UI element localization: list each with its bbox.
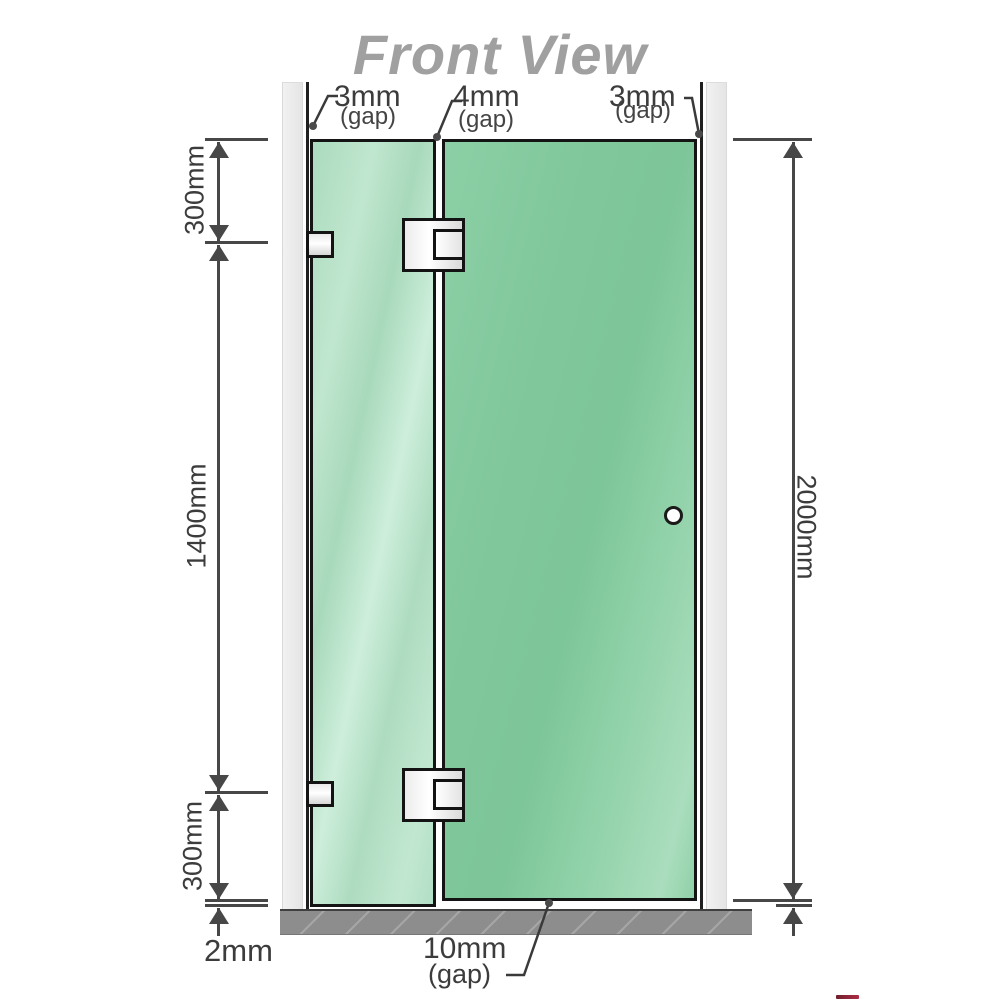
arrow-up-segment-bottom [209,795,229,811]
arrow-up-floor-clearance [209,908,229,924]
page-title: Front View [353,22,647,87]
arrow-down-segment-middle [209,775,229,791]
leader-dot-gap-top-left [309,122,317,130]
diagram-canvas: Front View 300mm 1400mm 300mm 2mm 2000mm [0,0,1000,1000]
glass-hinge-top-tongue [433,229,465,260]
dim-tick-floor-right [776,904,812,907]
arrow-down-segment-bottom [209,883,229,899]
door-panel-glass [442,139,697,901]
glass-hinge-bottom-tongue [433,779,465,810]
dim-label-segment-middle: 1400mm [184,463,211,568]
arrow-up-segment-middle [209,245,229,261]
dim-tick-hinge-top [205,241,268,244]
leader-line-gap-top-right [684,98,699,134]
arrow-up-segment-top [209,142,229,158]
floor-base [280,909,752,935]
gap-label-bottom-qualifier: (gap) [428,961,491,988]
right-wall-channel [706,82,727,909]
wall-bracket-top [306,231,334,258]
left-wall-channel [282,82,303,909]
dim-line-segment-middle [217,245,220,791]
dim-tick-hinge-bottom [205,791,268,794]
dim-label-segment-top: 300mm [182,145,209,235]
dim-tick-glass-bottom-right [733,899,812,902]
dim-tick-glass-top-left [205,138,268,141]
dim-tick-floor-left [205,904,268,907]
dim-label-segment-bottom: 300mm [180,801,207,891]
gap-label-top-center-qualifier: (gap) [458,108,514,132]
wall-bracket-bottom [306,781,334,807]
gap-label-top-right-qualifier: (gap) [615,99,671,123]
dim-tick-glass-bottom-left [205,899,268,902]
door-handle-knob [664,506,683,525]
arrow-up-overall-height [783,142,803,158]
dim-label-overall-height: 2000mm [793,474,820,579]
dim-tick-glass-top-right [733,138,812,141]
gap-label-top-left-qualifier: (gap) [340,105,396,129]
arrow-up-floor-right [783,908,803,924]
arrow-down-overall-height [783,883,803,899]
dim-label-floor-clearance: 2mm [204,935,273,966]
partial-logo-mark [836,995,859,999]
arrow-down-segment-top [209,225,229,241]
right-wall-edge-line [700,82,703,909]
